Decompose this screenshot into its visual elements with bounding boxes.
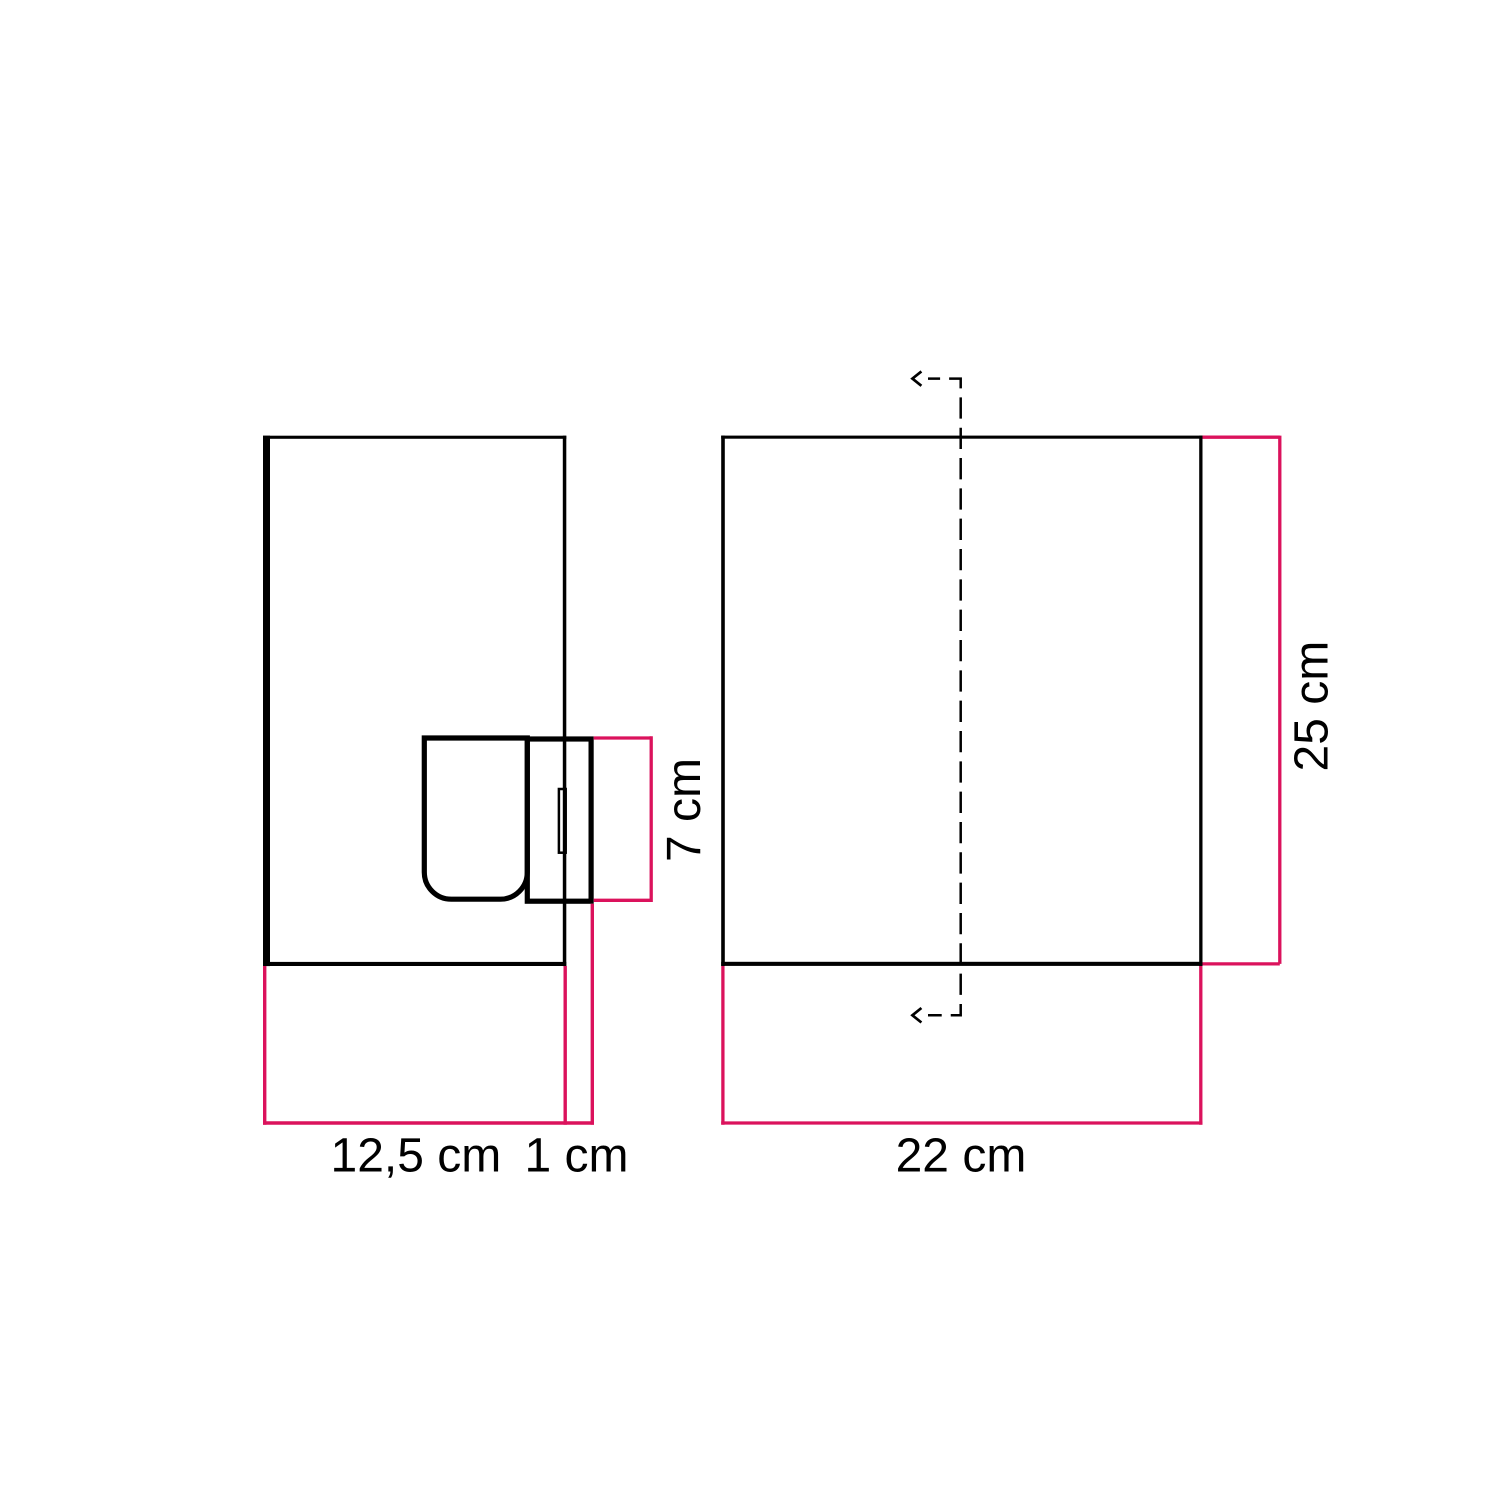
- svg-text:25 cm: 25 cm: [1286, 641, 1339, 772]
- svg-text:22 cm: 22 cm: [896, 1130, 1027, 1183]
- svg-text:7 cm: 7 cm: [658, 758, 711, 862]
- svg-text:12,5 cm: 12,5 cm: [331, 1130, 502, 1183]
- svg-text:1 cm: 1 cm: [525, 1130, 629, 1183]
